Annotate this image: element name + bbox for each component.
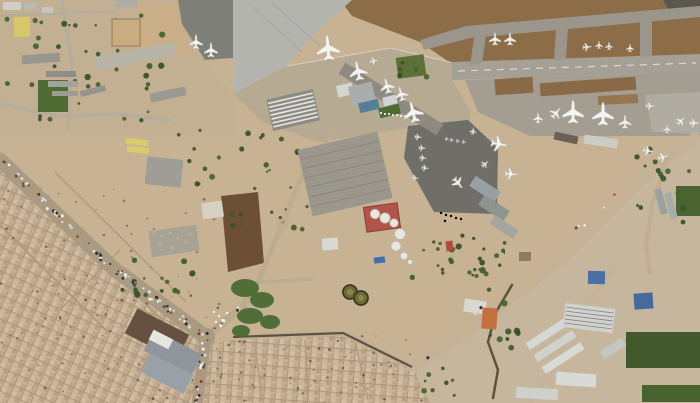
city-speckle — [5, 227, 8, 230]
tree — [424, 380, 427, 383]
traffic-vehicle — [173, 310, 175, 312]
traffic-vehicle — [143, 287, 145, 289]
bus-yard-vehicles — [226, 312, 228, 314]
city-speckle — [309, 360, 312, 363]
city-speckle — [248, 359, 250, 361]
tree — [239, 212, 243, 216]
city-speckle — [318, 347, 321, 350]
traffic-vehicle — [167, 310, 169, 312]
building — [505, 248, 515, 256]
city-speckle — [409, 353, 411, 355]
traffic-vehicle — [124, 273, 126, 275]
tree — [449, 259, 454, 264]
tree — [145, 87, 149, 91]
building — [322, 237, 339, 250]
tree — [39, 21, 43, 25]
city-speckle — [326, 376, 329, 379]
traffic-vehicle — [54, 210, 56, 212]
city-speckle — [252, 384, 254, 386]
city-speckle — [361, 335, 363, 337]
city-speckle — [133, 299, 135, 301]
tree — [634, 154, 639, 159]
city-speckle — [238, 340, 240, 342]
tree — [436, 247, 440, 251]
tree — [29, 82, 34, 87]
tree — [73, 23, 78, 28]
tree — [187, 159, 191, 163]
city-speckle — [113, 189, 114, 190]
city-speckle — [185, 213, 187, 215]
traffic-vehicle — [179, 318, 181, 320]
traffic-vehicle — [61, 214, 64, 217]
tree — [139, 118, 143, 122]
tree — [505, 337, 509, 341]
farm-field — [642, 385, 700, 402]
city-speckle — [9, 334, 11, 336]
traffic-vehicle — [224, 320, 226, 322]
city-speckle — [314, 380, 316, 382]
building — [14, 17, 30, 37]
traffic-vehicle — [116, 273, 118, 275]
city-speckle — [355, 382, 357, 384]
tree — [430, 388, 434, 392]
tree — [94, 24, 97, 27]
city-speckle — [96, 209, 97, 210]
traffic-vehicle — [201, 342, 204, 345]
tree — [498, 263, 502, 267]
fuel-tank — [408, 260, 413, 265]
city-speckle — [131, 256, 133, 258]
taxiway-connector — [554, 28, 568, 60]
traffic-vehicle — [56, 215, 58, 217]
tree — [421, 388, 427, 394]
fuel-tank — [390, 219, 398, 227]
traffic-vehicle — [21, 177, 24, 180]
traffic-vehicle — [200, 380, 203, 383]
city-speckle — [323, 401, 324, 402]
city-speckle — [57, 293, 60, 296]
traffic-vehicle — [194, 398, 197, 401]
city-speckle — [415, 374, 417, 376]
city-speckle — [420, 399, 423, 402]
equipment-clutter — [161, 235, 164, 238]
tree — [116, 49, 120, 53]
city-speckle — [70, 327, 71, 328]
tree — [681, 220, 686, 225]
city-speckle — [44, 386, 47, 389]
tree — [114, 67, 118, 71]
tree — [501, 300, 507, 306]
city-speckle — [306, 374, 307, 375]
city-speckle — [82, 335, 85, 338]
tree — [259, 136, 262, 139]
fuel-tank — [400, 252, 408, 260]
tree — [203, 166, 208, 171]
tree — [661, 176, 667, 182]
traffic-vehicle — [199, 361, 201, 363]
city-speckle — [28, 369, 30, 371]
city-speckle — [337, 340, 339, 342]
tree — [305, 205, 308, 208]
traffic-vehicle — [202, 348, 205, 351]
city-speckle — [389, 365, 392, 368]
traffic-vehicle — [99, 259, 102, 262]
building — [46, 71, 76, 77]
city-speckle — [116, 299, 118, 301]
city-speckle — [221, 374, 223, 376]
traffic-vehicle — [131, 281, 134, 284]
city-speckle — [213, 218, 215, 220]
traffic-vehicle — [183, 320, 185, 322]
apron-vehicles — [445, 214, 447, 216]
traffic-vehicle — [103, 262, 105, 264]
tree — [397, 73, 402, 78]
tree — [444, 381, 449, 386]
fuel-tank — [395, 229, 406, 240]
building — [3, 2, 21, 10]
city-speckle — [188, 291, 189, 292]
tree — [146, 82, 151, 87]
tree — [489, 334, 492, 337]
equipment-clutter — [185, 241, 188, 244]
tree — [268, 169, 270, 171]
traffic-vehicle — [69, 224, 72, 227]
traffic-vehicle — [46, 207, 49, 210]
city-speckle — [52, 285, 54, 287]
tree — [279, 216, 282, 219]
city-speckle — [44, 317, 47, 320]
traffic-vehicle — [61, 221, 63, 223]
tree — [199, 129, 202, 132]
city-speckle — [238, 379, 240, 381]
city-speckle — [205, 317, 207, 319]
tree — [33, 43, 39, 49]
traffic-vehicle — [117, 270, 119, 272]
city-speckle — [16, 337, 19, 340]
tree — [245, 131, 251, 137]
tree — [239, 146, 244, 151]
park-green — [260, 315, 280, 329]
tree — [482, 247, 485, 250]
city-speckle — [367, 388, 369, 390]
city-speckle — [283, 349, 285, 351]
tree — [479, 260, 485, 266]
tree — [53, 64, 57, 68]
city-speckle — [36, 290, 38, 292]
city-speckle — [373, 378, 375, 380]
tree — [217, 155, 221, 159]
traffic-vehicle — [204, 354, 207, 357]
traffic-vehicle — [197, 332, 200, 335]
city-speckle — [61, 335, 62, 336]
tree — [473, 268, 477, 272]
tree — [410, 275, 415, 280]
city-speckle — [125, 397, 126, 398]
city-speckle — [289, 377, 292, 380]
traffic-vehicle — [202, 366, 205, 369]
apron-vehicles — [455, 217, 457, 219]
building — [481, 308, 497, 330]
tree — [289, 186, 292, 189]
traffic-vehicle — [3, 161, 5, 163]
traffic-vehicle — [22, 182, 24, 184]
traffic-vehicle — [121, 270, 123, 272]
traffic-vehicle — [133, 284, 136, 287]
traffic-vehicle — [41, 200, 43, 202]
tree — [653, 159, 658, 164]
traffic-vehicle — [158, 299, 161, 302]
building — [556, 372, 597, 388]
apron-vehicles — [460, 218, 462, 220]
city-speckle — [62, 244, 63, 245]
tree — [266, 171, 268, 173]
city-speckle — [362, 374, 365, 377]
city-speckle — [240, 371, 242, 373]
traffic-vehicle — [583, 224, 586, 227]
traffic-vehicle — [128, 276, 130, 278]
city-speckle — [104, 360, 105, 361]
tree — [158, 63, 164, 69]
tree — [96, 52, 101, 57]
city-speckle — [392, 373, 394, 375]
tree — [478, 268, 481, 271]
traffic-vehicle — [37, 193, 39, 195]
traffic-vehicle — [99, 254, 102, 257]
city-speckle — [243, 340, 246, 343]
traffic-vehicle — [163, 305, 166, 308]
city-speckle — [254, 386, 255, 387]
tree — [77, 102, 80, 105]
ground-vehicles — [392, 114, 394, 116]
equipment-clutter — [154, 231, 157, 234]
city-speckle — [107, 310, 108, 311]
tree — [189, 270, 195, 276]
city-speckle — [84, 299, 87, 302]
city-speckle — [63, 276, 65, 278]
city-speckle — [230, 396, 231, 397]
equipment-clutter — [189, 233, 192, 236]
traffic-vehicle — [170, 312, 172, 314]
bus-yard-vehicles — [218, 315, 220, 317]
city-speckle — [86, 275, 88, 277]
traffic-vehicle — [54, 214, 56, 216]
tree — [5, 17, 10, 22]
tree — [474, 274, 478, 278]
city-speckle — [380, 364, 382, 366]
tree — [253, 187, 256, 190]
city-speckle — [146, 217, 148, 219]
fuel-tank — [391, 241, 401, 251]
city-speckle — [32, 290, 33, 291]
traffic-vehicle — [28, 184, 30, 186]
tree — [144, 293, 148, 297]
traffic-vehicle — [155, 296, 158, 299]
city-speckle — [21, 360, 22, 361]
city-speckle — [313, 369, 315, 371]
traffic-vehicle — [426, 356, 429, 359]
tree — [451, 379, 454, 382]
city-speckle — [105, 313, 108, 316]
tree — [192, 147, 196, 151]
tree — [505, 328, 511, 334]
city-speckle — [255, 366, 257, 368]
traffic-vehicle — [206, 332, 209, 335]
traffic-vehicle — [121, 277, 124, 280]
taxiway-connector — [640, 20, 652, 57]
tree — [139, 13, 144, 18]
farm-field — [626, 332, 700, 368]
city-speckle — [56, 338, 58, 340]
red-shed — [445, 241, 453, 252]
park-green — [232, 325, 250, 337]
tree — [84, 74, 90, 80]
city-speckle — [355, 386, 357, 388]
building — [52, 91, 78, 96]
tree — [453, 394, 456, 397]
plowed-field — [221, 192, 264, 272]
apron-vehicles — [440, 212, 442, 214]
dirt-patch — [494, 77, 533, 96]
city-speckle — [97, 282, 99, 284]
ground-vehicles — [384, 113, 386, 115]
tree — [497, 336, 503, 342]
city-speckle — [27, 248, 28, 249]
roundabout-center — [281, 220, 285, 224]
bus-yard-vehicles — [215, 321, 217, 323]
city-speckle — [71, 353, 73, 355]
traffic-vehicle — [58, 215, 60, 217]
tree — [398, 67, 403, 72]
traffic-vehicle — [88, 242, 90, 244]
traffic-vehicle — [76, 235, 79, 238]
tree — [36, 36, 41, 41]
city-speckle — [35, 323, 37, 325]
tree — [177, 133, 181, 137]
satellite-map — [0, 0, 700, 403]
city-speckle — [37, 303, 39, 305]
traffic-vehicle — [169, 308, 171, 310]
city-speckle — [96, 314, 98, 316]
tree — [414, 67, 419, 72]
city-speckle — [345, 356, 347, 358]
traffic-vehicle — [201, 354, 203, 356]
tree — [644, 164, 647, 167]
traffic-vehicle — [25, 182, 28, 185]
city-speckle — [130, 233, 132, 235]
tree — [159, 31, 165, 37]
tree — [38, 114, 42, 118]
fuel-tank — [380, 213, 390, 223]
tree — [681, 206, 686, 211]
city-speckle — [217, 370, 218, 371]
city-speckle — [216, 348, 218, 350]
traffic-vehicle — [15, 174, 18, 177]
city-speckle — [178, 276, 179, 277]
traffic-vehicle — [22, 184, 24, 186]
tree — [5, 81, 10, 86]
city-speckle — [58, 193, 59, 194]
storage-tank-cap — [358, 295, 364, 301]
city-speckle — [138, 363, 141, 366]
city-speckle — [172, 296, 173, 297]
tree — [147, 111, 150, 114]
park-green — [250, 292, 274, 308]
equipment-clutter — [171, 247, 174, 250]
equipment-clutter — [177, 237, 180, 240]
city-speckle — [405, 339, 407, 341]
ground-vehicles — [388, 113, 390, 115]
traffic-vehicle — [70, 226, 73, 229]
traffic-vehicle — [99, 252, 101, 254]
traffic-vehicle — [479, 306, 482, 309]
traffic-vehicle — [148, 298, 151, 301]
tree — [61, 21, 67, 27]
tree — [437, 264, 440, 267]
city-speckle — [159, 389, 162, 392]
city-speckle — [63, 240, 65, 242]
city-speckle — [51, 251, 53, 253]
building — [112, 19, 140, 46]
tree — [48, 117, 53, 122]
city-speckle — [315, 398, 316, 399]
tree — [209, 174, 215, 180]
tree — [460, 234, 464, 238]
city-speckle — [203, 198, 206, 201]
city-speckle — [217, 307, 220, 310]
tree — [86, 84, 90, 88]
ground-vehicles — [380, 112, 382, 114]
tree — [665, 169, 671, 175]
tree — [432, 240, 435, 243]
city-speckle — [75, 201, 77, 203]
city-speckle — [126, 225, 128, 227]
city-speckle — [307, 347, 309, 349]
city-speckle — [322, 385, 323, 386]
park-green — [237, 308, 263, 324]
fuel-tank — [370, 209, 380, 219]
tree — [33, 18, 38, 23]
city-speckle — [227, 344, 230, 347]
tree — [230, 223, 235, 228]
city-speckle — [136, 379, 139, 382]
tree — [441, 268, 445, 272]
city-speckle — [310, 385, 311, 386]
tree — [472, 237, 475, 240]
city-speckle — [94, 299, 96, 301]
city-speckle — [120, 356, 122, 358]
traffic-vehicle — [56, 212, 59, 215]
tree — [132, 258, 137, 263]
city-speckle — [163, 191, 164, 192]
city-speckle — [3, 198, 5, 200]
traffic-vehicle — [207, 339, 209, 341]
apron-vehicles — [444, 220, 446, 222]
tree — [401, 61, 405, 65]
city-speckle — [218, 302, 221, 305]
city-speckle — [62, 362, 64, 364]
building — [519, 252, 531, 261]
traffic-vehicle — [236, 309, 239, 312]
tree — [240, 224, 243, 227]
city-speckle — [135, 357, 136, 358]
traffic-vehicle — [44, 199, 47, 202]
city-speckle — [84, 372, 86, 374]
city-speckle — [389, 367, 390, 368]
city-speckle — [196, 278, 197, 279]
city-speckle — [383, 398, 385, 400]
city-speckle — [219, 356, 221, 358]
tree — [676, 190, 682, 196]
